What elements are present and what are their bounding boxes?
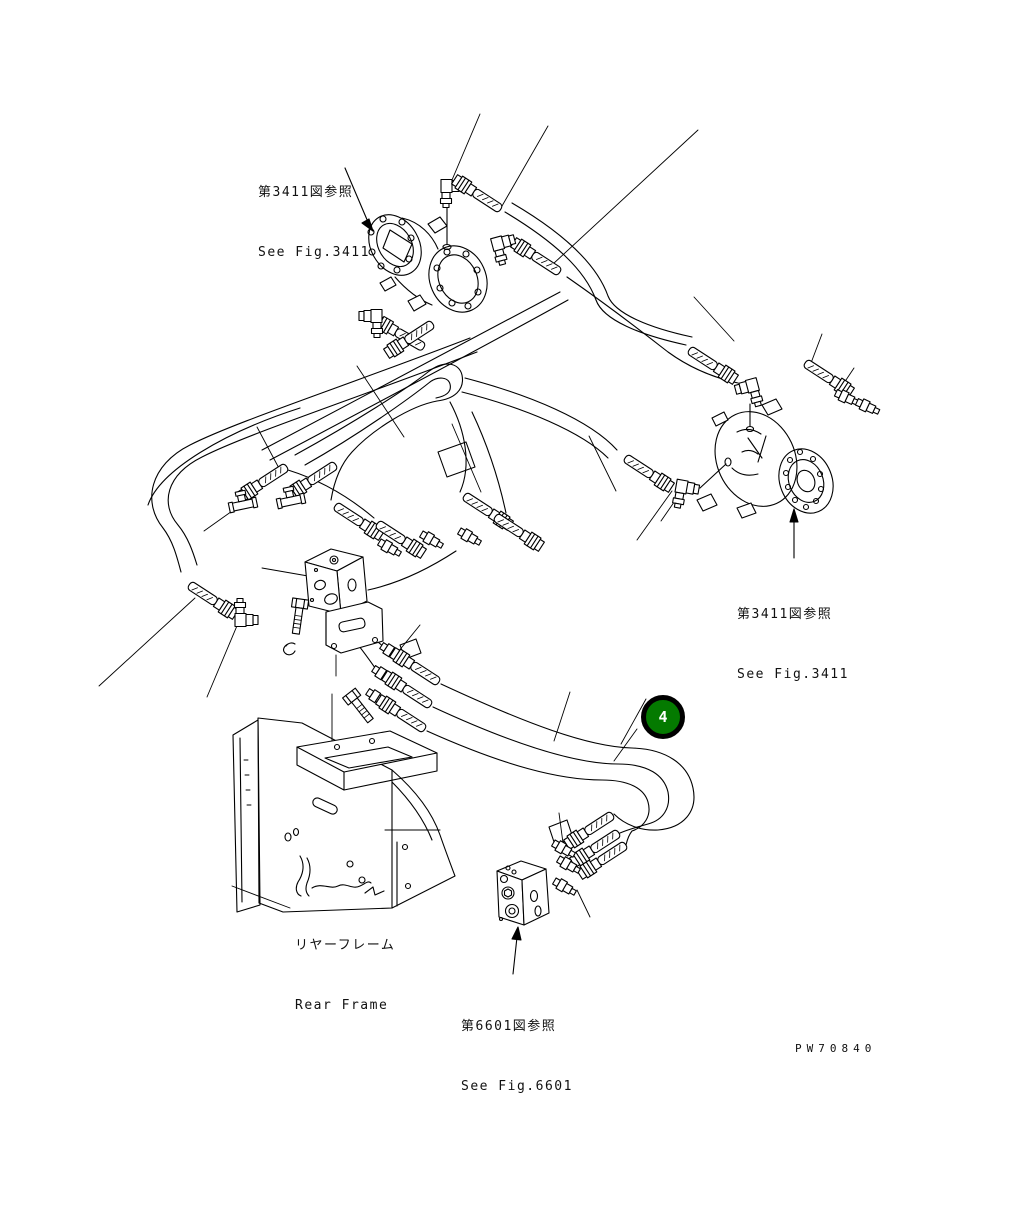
drawing-number: PW70840 xyxy=(795,1042,876,1055)
label-see-fig-6601: 第6601図参照 See Fig.6601 xyxy=(461,977,573,1117)
parts-diagram-page: 第3411図参照 See Fig.3411 第3411図参照 See Fig.3… xyxy=(0,0,1015,1208)
label-rear-frame-en: Rear Frame xyxy=(295,996,395,1016)
rear-frame-panel xyxy=(233,718,455,912)
label-rear-frame: リヤーフレーム Rear Frame xyxy=(295,896,395,1036)
hose-runs xyxy=(148,203,738,845)
label-see-fig-3411-top: 第3411図参照 See Fig.3411 xyxy=(258,143,370,283)
retainer-clip xyxy=(284,643,295,655)
label-see-fig-3411-right-en: See Fig.3411 xyxy=(737,665,849,685)
part-callout-number: 4 xyxy=(658,708,667,726)
label-see-fig-6601-jp: 第6601図参照 xyxy=(461,1017,573,1037)
mounting-bolt xyxy=(288,598,309,635)
left-brake-hub-assembly xyxy=(358,202,497,321)
label-see-fig-3411-top-en: See Fig.3411 xyxy=(258,243,370,263)
arrow-to-right-hub xyxy=(790,509,798,558)
clamp-plate xyxy=(438,442,475,477)
right-brake-hub-assembly xyxy=(697,398,842,521)
label-see-fig-6601-en: See Fig.6601 xyxy=(461,1077,573,1097)
arrow-to-valve-block xyxy=(512,927,521,974)
manifold-mounting-bracket xyxy=(326,602,383,653)
label-rear-frame-jp: リヤーフレーム xyxy=(295,936,395,956)
label-see-fig-3411-right-jp: 第3411図参照 xyxy=(737,605,849,625)
valve-block xyxy=(497,861,549,925)
part-callout-balloon-4[interactable]: 4 xyxy=(641,695,685,739)
label-see-fig-3411-top-jp: 第3411図参照 xyxy=(258,183,370,203)
label-see-fig-3411-right: 第3411図参照 See Fig.3411 xyxy=(737,565,849,705)
